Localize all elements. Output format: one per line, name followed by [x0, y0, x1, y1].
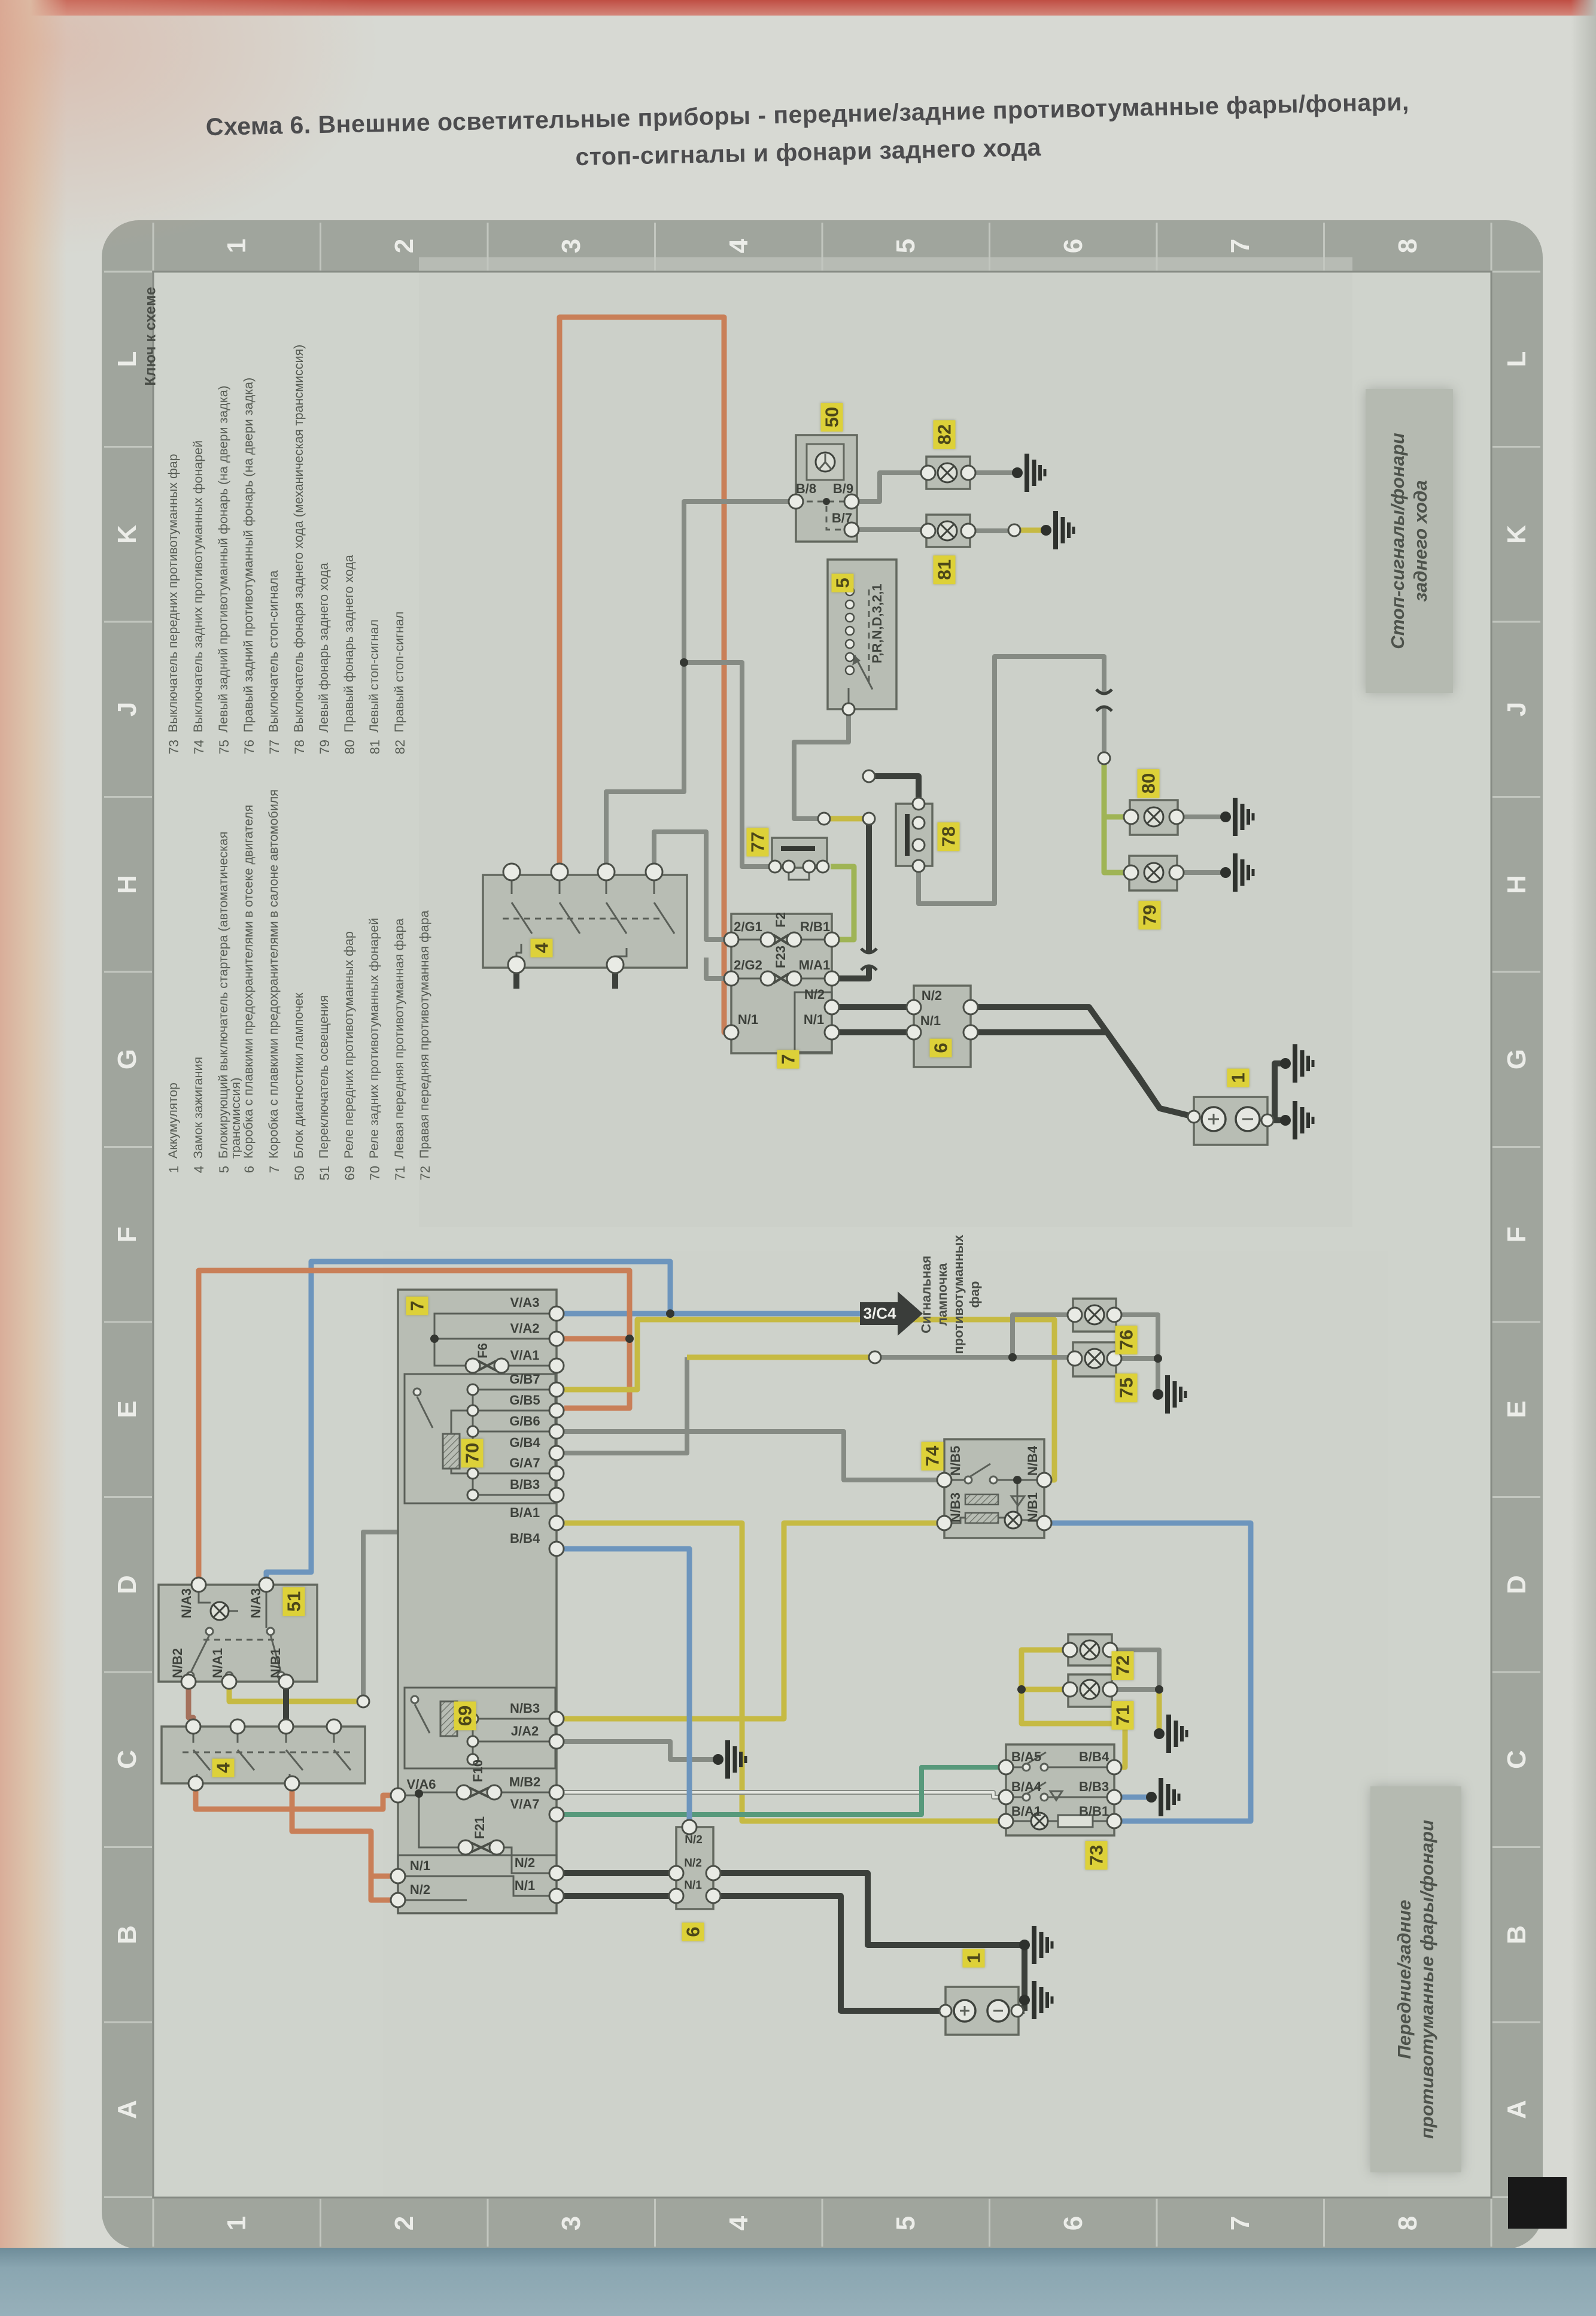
pin-circle — [1011, 2005, 1023, 2017]
legend-item-text: Правая передняя противотуманная фара — [418, 773, 443, 1159]
caption-stop-signals-reverse: Стоп-сигналы/фонари заднего хода — [1366, 389, 1453, 693]
caption-stop-line1: Стоп-сигналы/фонари — [1387, 433, 1409, 649]
lamp-symbol — [1144, 807, 1163, 826]
pin-circle — [549, 1446, 564, 1460]
pin-circle — [549, 1382, 564, 1397]
legend-item-text: Замок зажигания — [191, 773, 217, 1159]
pin-circle — [279, 1674, 293, 1689]
legend-item-text: Коробка с плавкими предохранителями в са… — [267, 773, 292, 1159]
legend-item-number: 72 — [418, 1159, 443, 1198]
legend-item: 69Реле передних противотуманных фар — [342, 773, 367, 1198]
legend-item-number: 1 — [166, 1159, 191, 1198]
lamp-symbol — [1031, 1813, 1048, 1829]
pin-circle — [1107, 1351, 1121, 1366]
pin-circle — [549, 1488, 564, 1502]
pin-circle — [549, 1466, 564, 1481]
pin-circle — [1037, 1516, 1051, 1530]
legend-item-number: 80 — [342, 733, 367, 772]
legend-item-number: 7 — [267, 1159, 292, 1198]
lamp-symbol — [938, 463, 957, 482]
junction-dot — [415, 1789, 423, 1798]
legend-item-text: Правый задний противотуманный фонарь (на… — [242, 293, 267, 733]
legend-item-text: Правый стоп-сигнал — [393, 293, 418, 733]
legend-item-number: 4 — [191, 1159, 217, 1198]
legend-item-number: 5 — [217, 1159, 242, 1198]
pin-circle — [913, 817, 925, 829]
legend-item-number: 77 — [267, 733, 292, 772]
pin-circle — [963, 1000, 978, 1014]
pin-circle — [724, 971, 738, 986]
legend-item-number: 51 — [317, 1159, 342, 1198]
connector-circle — [869, 1351, 881, 1363]
pin-circle — [1068, 1308, 1082, 1322]
caption-fog-lamps: Передние/задние противотуманные фары/фон… — [1370, 1786, 1461, 2172]
pin-circle — [724, 1025, 738, 1040]
pin-circle — [549, 1332, 564, 1346]
pin-circle — [999, 1760, 1013, 1774]
pin-circle — [467, 1490, 478, 1500]
legend-item: 6Коробка с плавкими предохранителями в о… — [242, 773, 267, 1198]
junction-dot — [1008, 1353, 1017, 1361]
pin-circle — [682, 1820, 697, 1834]
legend-item-text: Переключатель освещения — [317, 773, 342, 1159]
legend-item: 80Правый фонарь заднего хода — [342, 293, 367, 772]
legend-item-text: Правый фонарь заднего хода — [342, 293, 367, 733]
pin-circle — [961, 466, 975, 480]
legend-block-main: 1Аккумулятор4Замок зажигания5Блокирующий… — [166, 773, 445, 1198]
pin-circle — [467, 1713, 478, 1724]
pin-circle — [907, 1000, 921, 1014]
connector-circle — [1008, 524, 1020, 536]
legend-item-number: 81 — [367, 733, 393, 772]
scanned-page: { "page": { "title_line1": "Схема 6. Вне… — [0, 0, 1596, 2316]
pin-circle — [549, 1516, 564, 1530]
caption-fog-line2: противотуманные фары/фонари — [1416, 1820, 1439, 2139]
pin-circle — [391, 1869, 405, 1883]
pin-circle — [467, 1754, 478, 1765]
junction-dot — [430, 1335, 439, 1343]
pin-circle — [549, 1403, 564, 1418]
legend-item: 75Левый задний противотуманный фонарь (н… — [217, 293, 242, 772]
pin-circle — [549, 1734, 564, 1749]
pin-circle — [391, 1893, 405, 1907]
pin-circle — [1068, 1351, 1082, 1366]
pin-circle — [1107, 1814, 1121, 1828]
legend-item: 76Правый задний противотуманный фонарь (… — [242, 293, 267, 772]
lamp-symbol — [1085, 1305, 1104, 1324]
caption-stop-line2: заднего хода — [1409, 480, 1432, 601]
pin-circle — [467, 1384, 478, 1395]
pin-circle — [327, 1719, 341, 1734]
legend-item: 4Замок зажигания — [191, 773, 217, 1198]
pin-circle — [921, 524, 935, 538]
legend-item-number: 73 — [166, 733, 191, 772]
pin-circle — [789, 494, 803, 509]
legend-item-text: Левый задний противотуманный фонарь (на … — [217, 293, 242, 733]
pin-circle — [549, 1866, 564, 1880]
pin-circle — [607, 956, 624, 973]
connector-circle — [1098, 752, 1110, 764]
legend-item-number: 79 — [317, 733, 342, 772]
legend-item-text: Левая передняя противотуманная фара — [393, 773, 418, 1159]
pin-circle — [825, 971, 839, 986]
junction-dot — [625, 1335, 634, 1343]
legend-item-text: Выключатель фонаря заднего хода (механич… — [292, 293, 317, 733]
pin-circle — [783, 861, 795, 873]
connector-circle — [863, 813, 875, 825]
pin-circle — [549, 1712, 564, 1726]
legend-item: 81Левый стоп-сигнал — [367, 293, 393, 772]
pin-circle — [189, 1776, 203, 1791]
legend-item-text: Коробка с плавкими предохранителями в от… — [242, 773, 267, 1159]
lamp-symbol — [1080, 1640, 1099, 1660]
legend-item: 79Левый фонарь заднего хода — [317, 293, 342, 772]
pin-circle — [769, 861, 781, 873]
pin-circle — [467, 1736, 478, 1747]
connector-circle — [818, 813, 830, 825]
pin-circle — [1107, 1308, 1121, 1322]
lamp-symbol — [1005, 1512, 1022, 1528]
legend-item: 50Блок диагностики лампочек — [292, 773, 317, 1198]
pin-circle — [706, 1889, 721, 1903]
lamp-symbol — [1085, 1349, 1104, 1368]
lamp-symbol — [1144, 863, 1163, 882]
pin-circle — [549, 1358, 564, 1373]
pin-circle — [1188, 1111, 1200, 1123]
junction-dot — [1017, 1685, 1026, 1694]
legend-item-number: 70 — [367, 1159, 393, 1198]
pin-circle — [937, 1516, 951, 1530]
pin-circle — [222, 1674, 236, 1689]
pin-circle — [285, 1776, 299, 1791]
pin-circle — [913, 860, 925, 872]
legend-item-text: Левый стоп-сигнал — [367, 293, 393, 733]
pin-circle — [963, 1025, 978, 1040]
legend-item-number: 69 — [342, 1159, 367, 1198]
legend-item-text: Блок диагностики лампочек — [292, 773, 317, 1159]
pin-circle — [1063, 1643, 1077, 1657]
pin-circle — [391, 1788, 405, 1803]
legend-item-text: Левый фонарь заднего хода — [317, 293, 342, 733]
pin-circle — [1124, 865, 1138, 880]
pin-circle — [1103, 1682, 1117, 1697]
pin-circle — [669, 1866, 683, 1880]
lamp-symbol — [211, 1602, 229, 1620]
pin-circle — [940, 2005, 951, 2017]
pin-circle — [549, 1542, 564, 1556]
pin-circle — [191, 1578, 206, 1592]
pin-circle — [467, 1468, 478, 1479]
legend-item: 71Левая передняя противотуманная фара — [393, 773, 418, 1198]
pin-circle — [706, 1866, 721, 1880]
legend-block-fog-stop: 73Выключатель передних противотуманных ф… — [166, 293, 420, 772]
legend-item: 73Выключатель передних противотуманных ф… — [166, 293, 191, 772]
pin-circle — [1063, 1682, 1077, 1697]
connector-circle — [357, 1695, 369, 1707]
legend-item: 5Блокирующий выключатель стартера (автом… — [217, 773, 242, 1198]
pin-circle — [646, 864, 662, 880]
legend-item: 7Коробка с плавкими предохранителями в с… — [267, 773, 292, 1198]
pin-circle — [551, 864, 568, 880]
pin-circle — [724, 932, 738, 947]
pin-circle — [825, 1000, 839, 1014]
legend-item-number: 78 — [292, 733, 317, 772]
legend-item-text: Аккумулятор — [166, 773, 191, 1159]
pin-circle — [1261, 1114, 1273, 1126]
pin-circle — [961, 524, 975, 538]
pin-circle — [843, 703, 855, 715]
pin-circle — [549, 1424, 564, 1439]
pin-circle — [508, 956, 525, 973]
pin-circle — [1107, 1760, 1121, 1774]
legend-item-number: 75 — [217, 733, 242, 772]
pin-circle — [549, 1785, 564, 1800]
legend-item: 82Правый стоп-сигнал — [393, 293, 418, 772]
legend-item-text: Выключатель передних противотуманных фар — [166, 293, 191, 733]
pin-circle — [913, 798, 925, 810]
legend-item-number: 6 — [242, 1159, 267, 1198]
legend-item-number: 74 — [191, 733, 217, 772]
legend-item: 51Переключатель освещения — [317, 773, 342, 1198]
junction-dot — [666, 1309, 674, 1318]
pin-circle — [844, 522, 859, 537]
pin-circle — [1107, 1790, 1121, 1804]
pin-circle — [844, 494, 859, 509]
pin-circle — [999, 1790, 1013, 1804]
legend-item-text: Реле передних противотуманных фар — [342, 773, 367, 1159]
pin-circle — [549, 1306, 564, 1321]
pin-circle — [921, 466, 935, 480]
legend-item: 70Реле задних противотуманных фонарей — [367, 773, 393, 1198]
pin-circle — [279, 1719, 293, 1734]
pin-circle — [913, 839, 925, 851]
connector-circle — [863, 770, 875, 782]
lamp-symbol — [1080, 1680, 1099, 1699]
pin-circle — [549, 1807, 564, 1822]
pin-circle — [549, 1889, 564, 1903]
pin-circle — [817, 861, 829, 873]
pin-circle — [803, 861, 815, 873]
pin-circle — [259, 1578, 273, 1592]
legend-item: 74Выключатель задних противотуманных фон… — [191, 293, 217, 772]
pin-circle — [669, 1889, 683, 1903]
pin-circle — [598, 864, 615, 880]
legend-item-number: 50 — [292, 1159, 317, 1198]
legend-item-text: Блокирующий выключатель стартера (автома… — [217, 773, 242, 1159]
junction-dot — [1154, 1354, 1162, 1363]
pin-circle — [503, 864, 520, 880]
legend-item: 78Выключатель фонаря заднего хода (механ… — [292, 293, 317, 772]
pin-circle — [181, 1674, 196, 1689]
pin-circle — [1169, 810, 1184, 824]
pin-circle — [825, 932, 839, 947]
page-corner-marker — [1508, 2177, 1567, 2229]
pin-circle — [186, 1719, 200, 1734]
junction-dot — [1013, 1476, 1022, 1484]
legend-item: 72Правая передняя противотуманная фара — [418, 773, 443, 1198]
pin-circle — [230, 1719, 245, 1734]
pin-circle — [1103, 1643, 1117, 1657]
junction-dot — [680, 658, 688, 667]
legend-item-number: 82 — [393, 733, 418, 772]
lamp-symbol — [938, 521, 957, 540]
legend-item-text: Выключатель стоп-сигнала — [267, 293, 292, 733]
legend-item: 77Выключатель стоп-сигнала — [267, 293, 292, 772]
junction-dot — [1155, 1685, 1163, 1694]
pin-circle — [825, 1025, 839, 1040]
legend-item-number: 71 — [393, 1159, 418, 1198]
pin-circle — [1037, 1473, 1051, 1487]
pin-circle — [1124, 810, 1138, 824]
pin-circle — [937, 1473, 951, 1487]
pin-circle — [467, 1426, 478, 1437]
pin-circle — [907, 1025, 921, 1040]
pin-circle — [999, 1814, 1013, 1828]
caption-fog-line1: Передние/задние — [1393, 1900, 1416, 2059]
legend-item: 1Аккумулятор — [166, 773, 191, 1198]
legend-item-text: Выключатель задних противотуманных фонар… — [191, 293, 217, 733]
pin-circle — [1169, 865, 1184, 880]
pin-circle — [467, 1405, 478, 1416]
legend-item-number: 76 — [242, 733, 267, 772]
legend-item-text: Реле задних противотуманных фонарей — [367, 773, 393, 1159]
